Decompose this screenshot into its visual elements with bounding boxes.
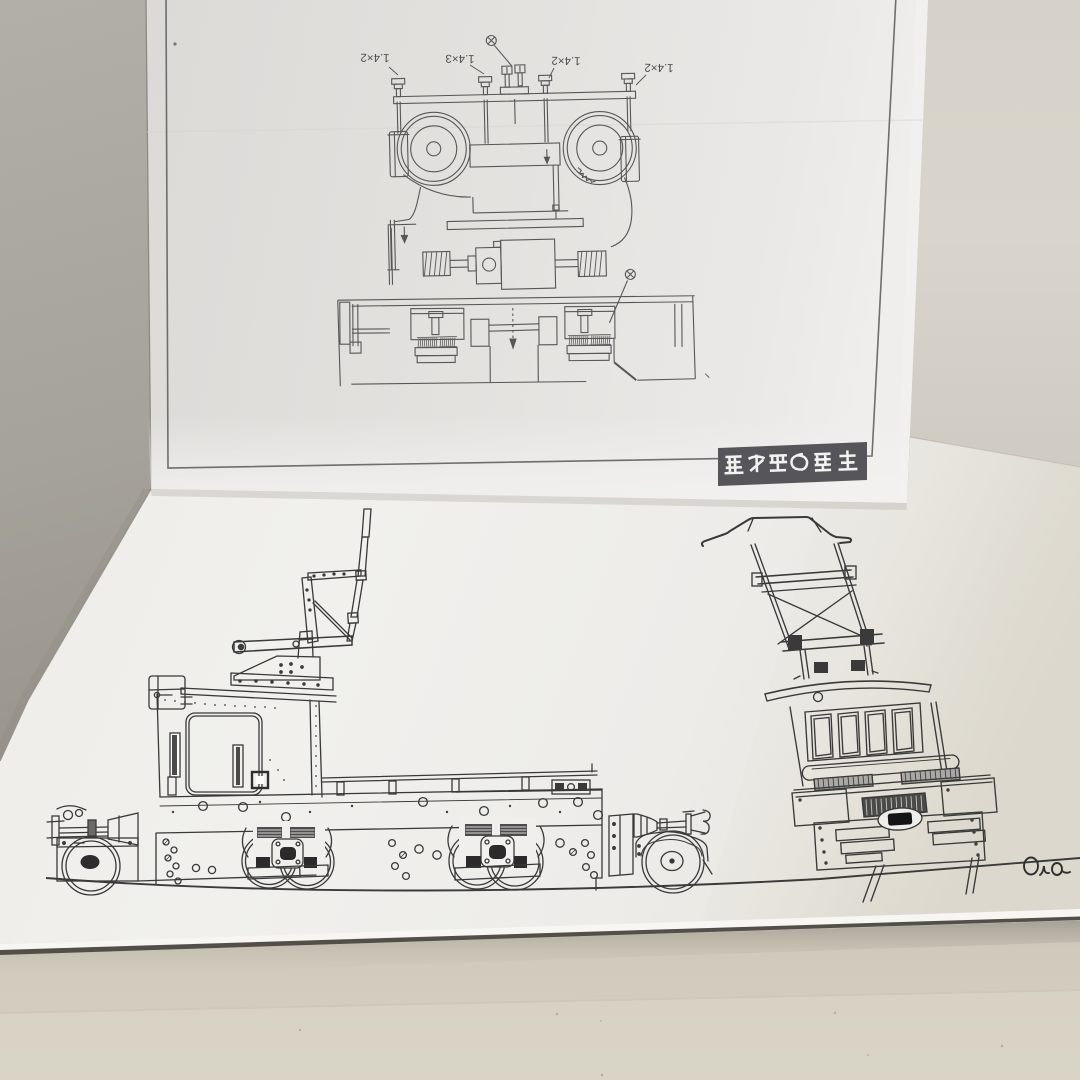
svg-text:1.4×2: 1.4×2	[551, 54, 580, 67]
svg-text:1.4×3: 1.4×3	[445, 52, 474, 65]
svg-text:1.4×2: 1.4×2	[644, 61, 673, 74]
svg-text:1.4×2: 1.4×2	[360, 51, 389, 64]
